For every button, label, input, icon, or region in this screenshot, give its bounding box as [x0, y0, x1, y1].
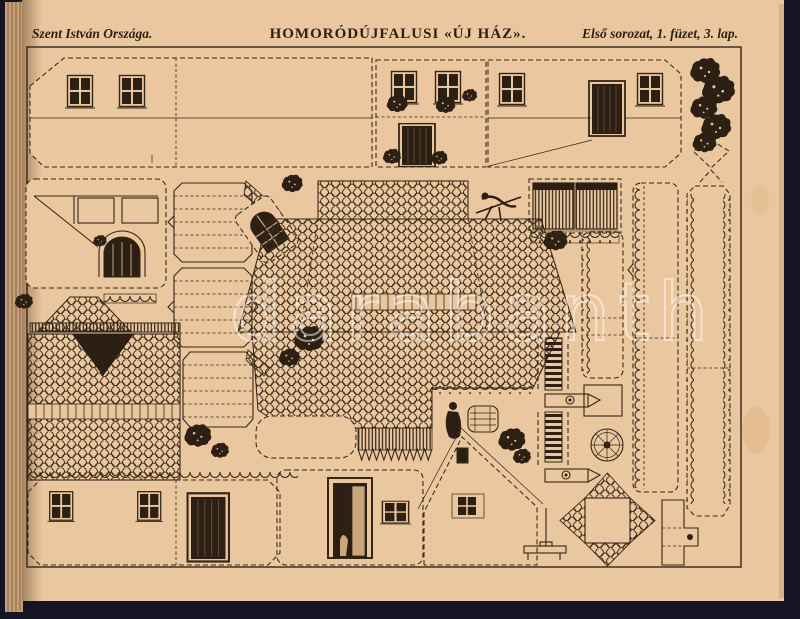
piece-interior-back-wall — [26, 179, 166, 288]
paper-stain — [742, 406, 770, 454]
header-series-left: Szent István Országa. — [32, 26, 152, 41]
wagon-wheel — [591, 429, 623, 461]
piece-long-side-wall — [30, 58, 372, 167]
piece-eave-strip — [256, 416, 356, 458]
paper-right-edge — [779, 4, 784, 598]
cutout-sheet-scan: Szent István Országa. HOMORÓDÚJFALUSI «Ú… — [0, 0, 800, 619]
watermark: darabanth — [230, 266, 716, 359]
page-title: HOMORÓDÚJFALUSI «ÚJ HÁZ». — [270, 25, 527, 42]
header-issue-right: Első sorozat, 1. füzet, 3. lap. — [581, 26, 738, 41]
scanned-book-page: Szent István Országa. HOMORÓDÚJFALUSI «Ú… — [0, 0, 800, 619]
paper-stain — [751, 186, 769, 214]
